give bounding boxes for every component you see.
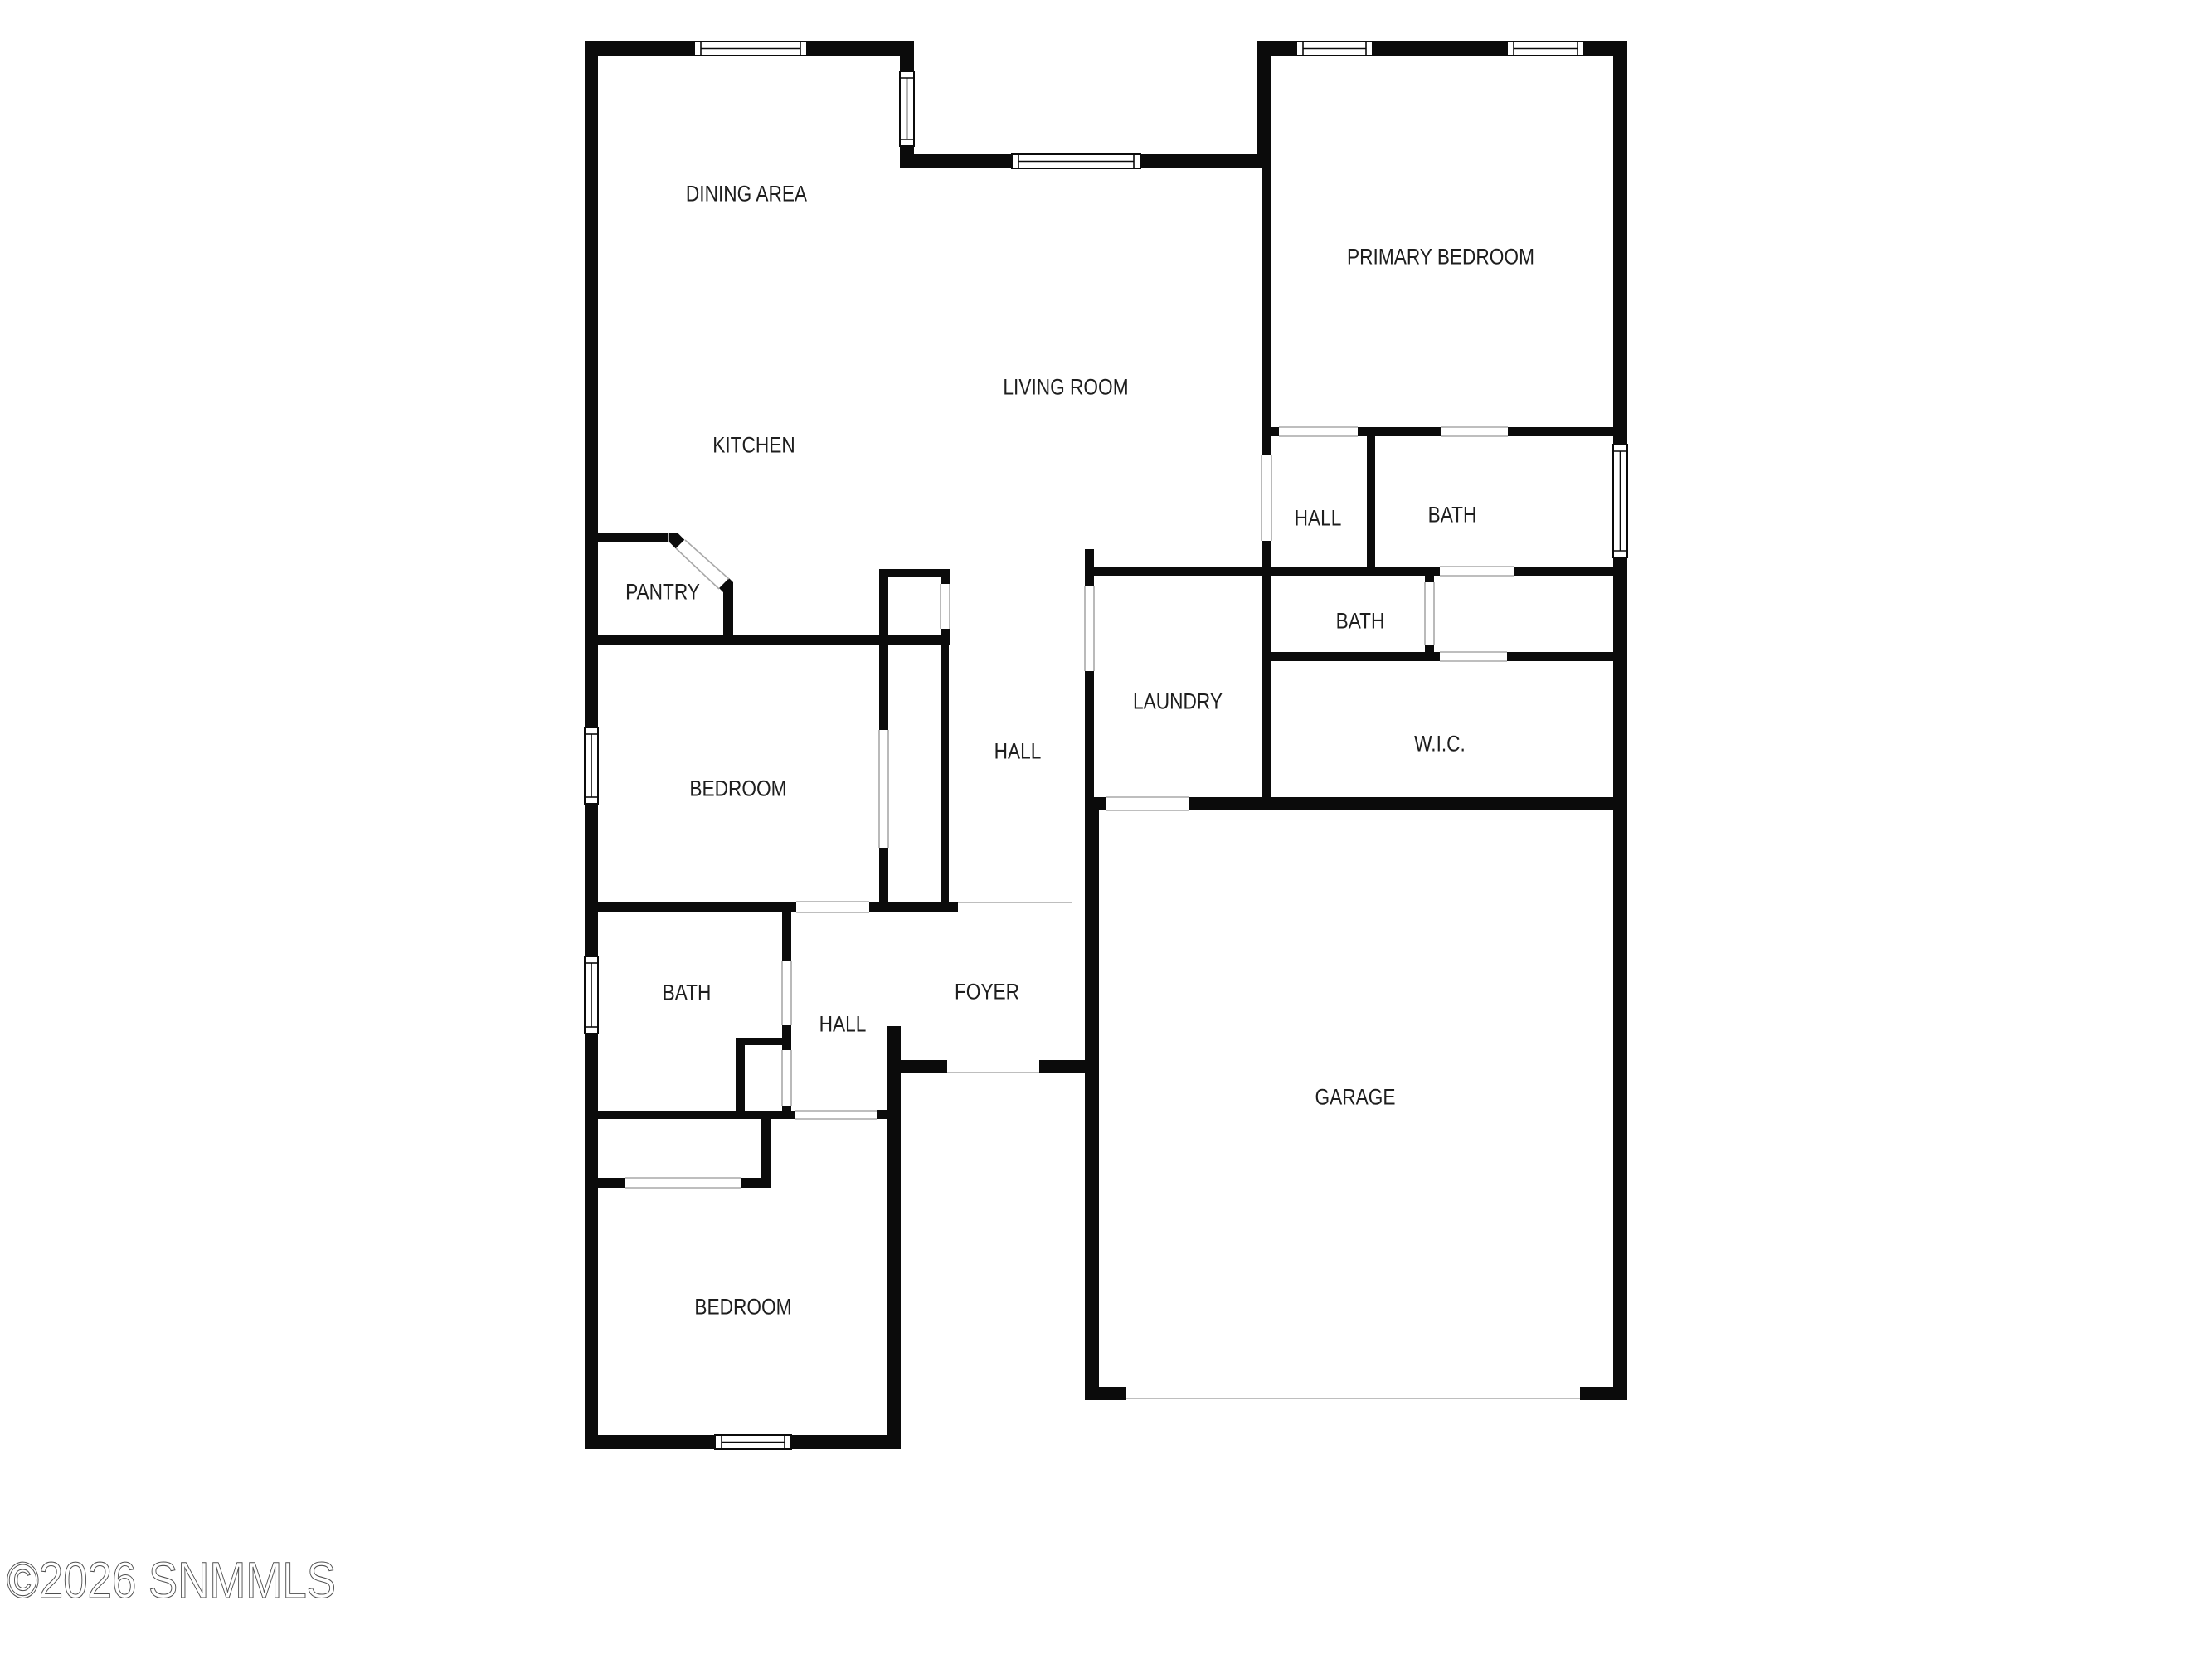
svg-text:HALL: HALL: [819, 1012, 867, 1037]
svg-text:W.I.C.: W.I.C.: [1414, 732, 1466, 757]
svg-text:GARAGE: GARAGE: [1315, 1085, 1395, 1110]
svg-text:PRIMARY BEDROOM: PRIMARY BEDROOM: [1347, 245, 1534, 270]
svg-text:DINING AREA: DINING AREA: [686, 182, 807, 207]
svg-text:©2026 SNMMLS: ©2026 SNMMLS: [7, 1552, 336, 1608]
svg-text:BATH: BATH: [1336, 609, 1385, 634]
svg-text:HALL: HALL: [1295, 506, 1342, 531]
svg-text:HALL: HALL: [994, 739, 1042, 764]
svg-text:BATH: BATH: [1428, 503, 1477, 528]
svg-text:BATH: BATH: [663, 980, 712, 1005]
svg-text:PANTRY: PANTRY: [625, 580, 700, 605]
svg-text:BEDROOM: BEDROOM: [689, 776, 786, 801]
svg-text:FOYER: FOYER: [955, 980, 1019, 1005]
svg-text:LIVING ROOM: LIVING ROOM: [1003, 375, 1128, 400]
svg-text:LAUNDRY: LAUNDRY: [1133, 689, 1223, 714]
svg-text:KITCHEN: KITCHEN: [712, 433, 795, 458]
svg-text:BEDROOM: BEDROOM: [694, 1295, 791, 1320]
